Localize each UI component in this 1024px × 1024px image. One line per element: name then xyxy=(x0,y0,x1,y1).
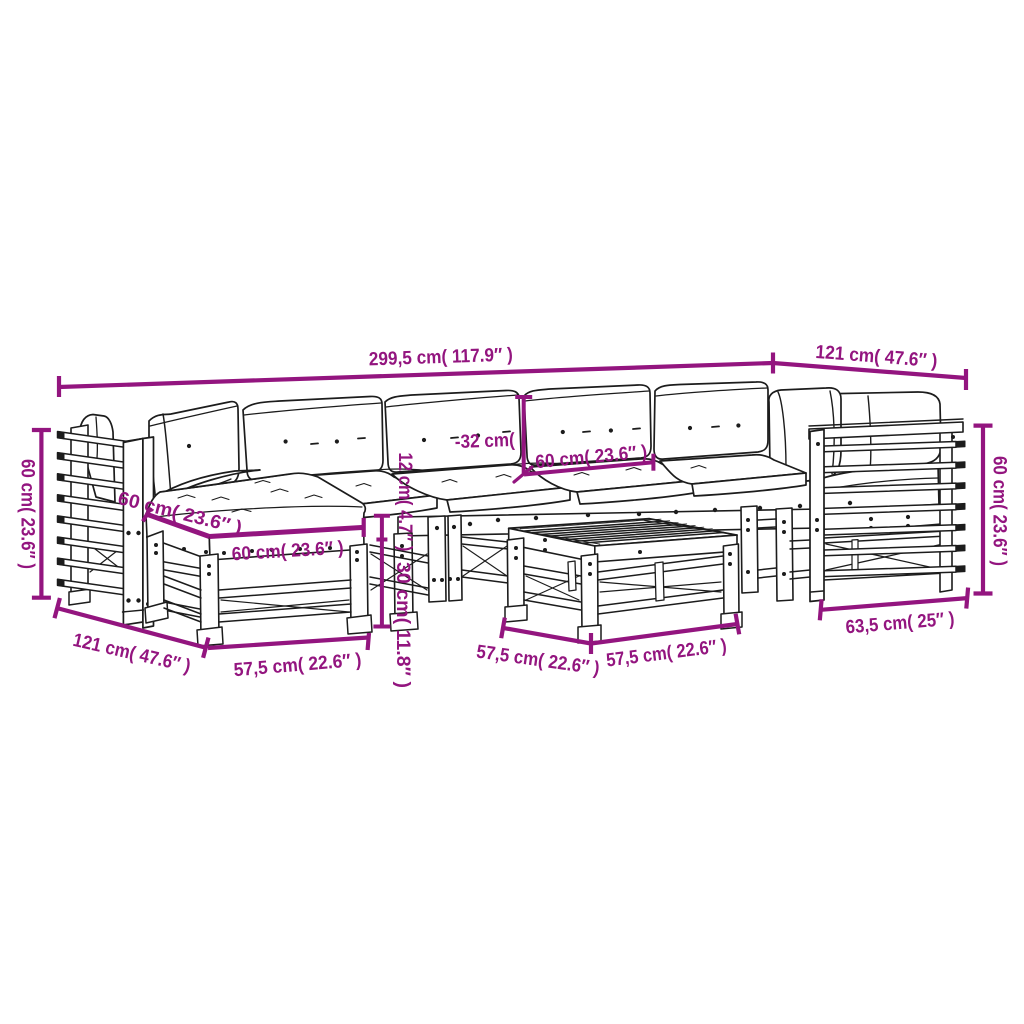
svg-text:60 cm( 23.6″ ): 60 cm( 23.6″ ) xyxy=(988,456,1009,566)
svg-text:60 cm( 23.6″ ): 60 cm( 23.6″ ) xyxy=(16,459,37,569)
svg-text:12 cm( 4.7″ ): 12 cm( 4.7″ ) xyxy=(394,453,415,552)
svg-text:30 cm( 11.8″ ): 30 cm( 11.8″ ) xyxy=(392,562,413,688)
svg-text:-32 cm(: -32 cm( xyxy=(454,430,515,453)
